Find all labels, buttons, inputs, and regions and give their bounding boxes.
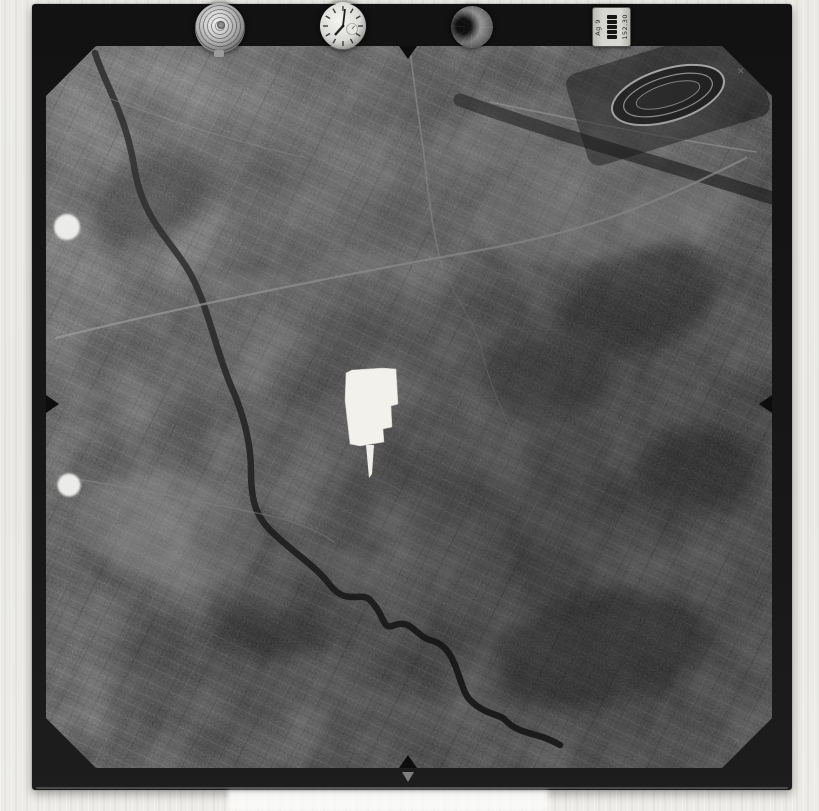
aerial-photo (46, 46, 772, 768)
altimeter-mount (214, 50, 224, 57)
corner-x-fiducial-icon: ✕ (737, 68, 745, 77)
scanned-aerial-photo-page: { "instrument_panel": { "altimeter_icon"… (0, 0, 819, 811)
clock-face-icon (319, 2, 367, 50)
frame-data-plate: Ag 9 152.30 (592, 7, 631, 47)
punch-hole (54, 214, 80, 240)
bottom-arrow-fiducial-icon (402, 772, 414, 782)
altimeter-hub-icon (217, 21, 225, 29)
altimeter-dial (195, 3, 245, 53)
corner-x-fiducial-icon: ✕ (733, 738, 741, 747)
digit-counter-icon (607, 15, 617, 39)
secondary-gauge-dial (451, 6, 493, 48)
data-plate-label-a: Ag 9 (595, 19, 602, 36)
punch-hole (58, 474, 81, 497)
dark-vignette (46, 46, 772, 768)
clock-dial (319, 2, 367, 50)
data-plate-label-b: 152.30 (622, 14, 629, 40)
film-sheet: Ag 9 152.30 ✕ ✕ (32, 4, 792, 790)
scanner-light-band (228, 791, 548, 811)
aerial-photo-canvas (46, 46, 772, 768)
